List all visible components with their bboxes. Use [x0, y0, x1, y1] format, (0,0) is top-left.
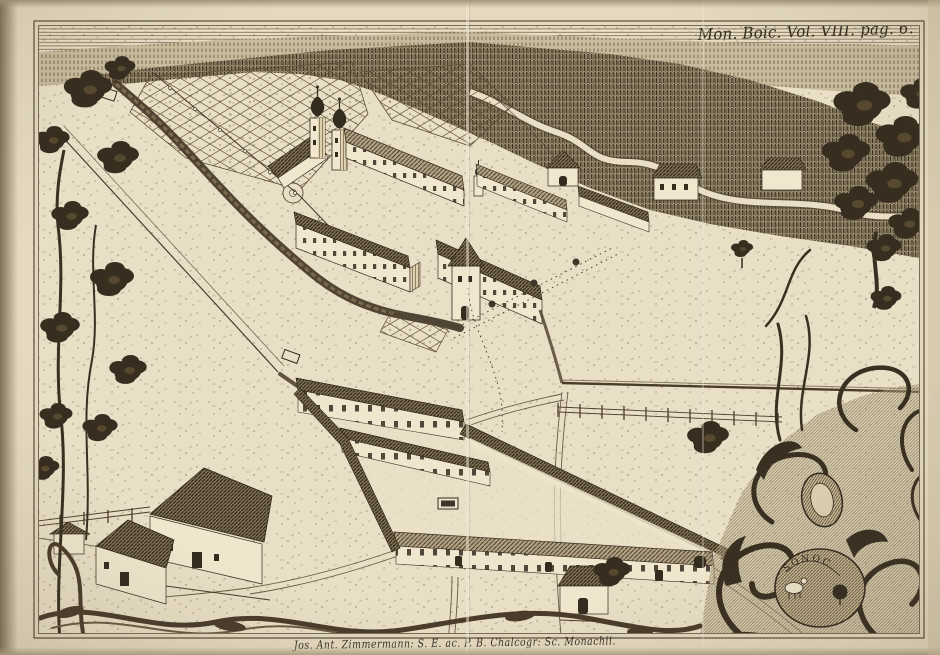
paper-edge-shading: [0, 0, 940, 655]
engraving-plate: SONOC Mon. Boic. Vol. VIII. pag. 6. Jos.…: [0, 0, 940, 655]
scanned-engraving-page: SONOC Mon. Boic. Vol. VIII. pag. 6. Jos.…: [0, 0, 940, 655]
